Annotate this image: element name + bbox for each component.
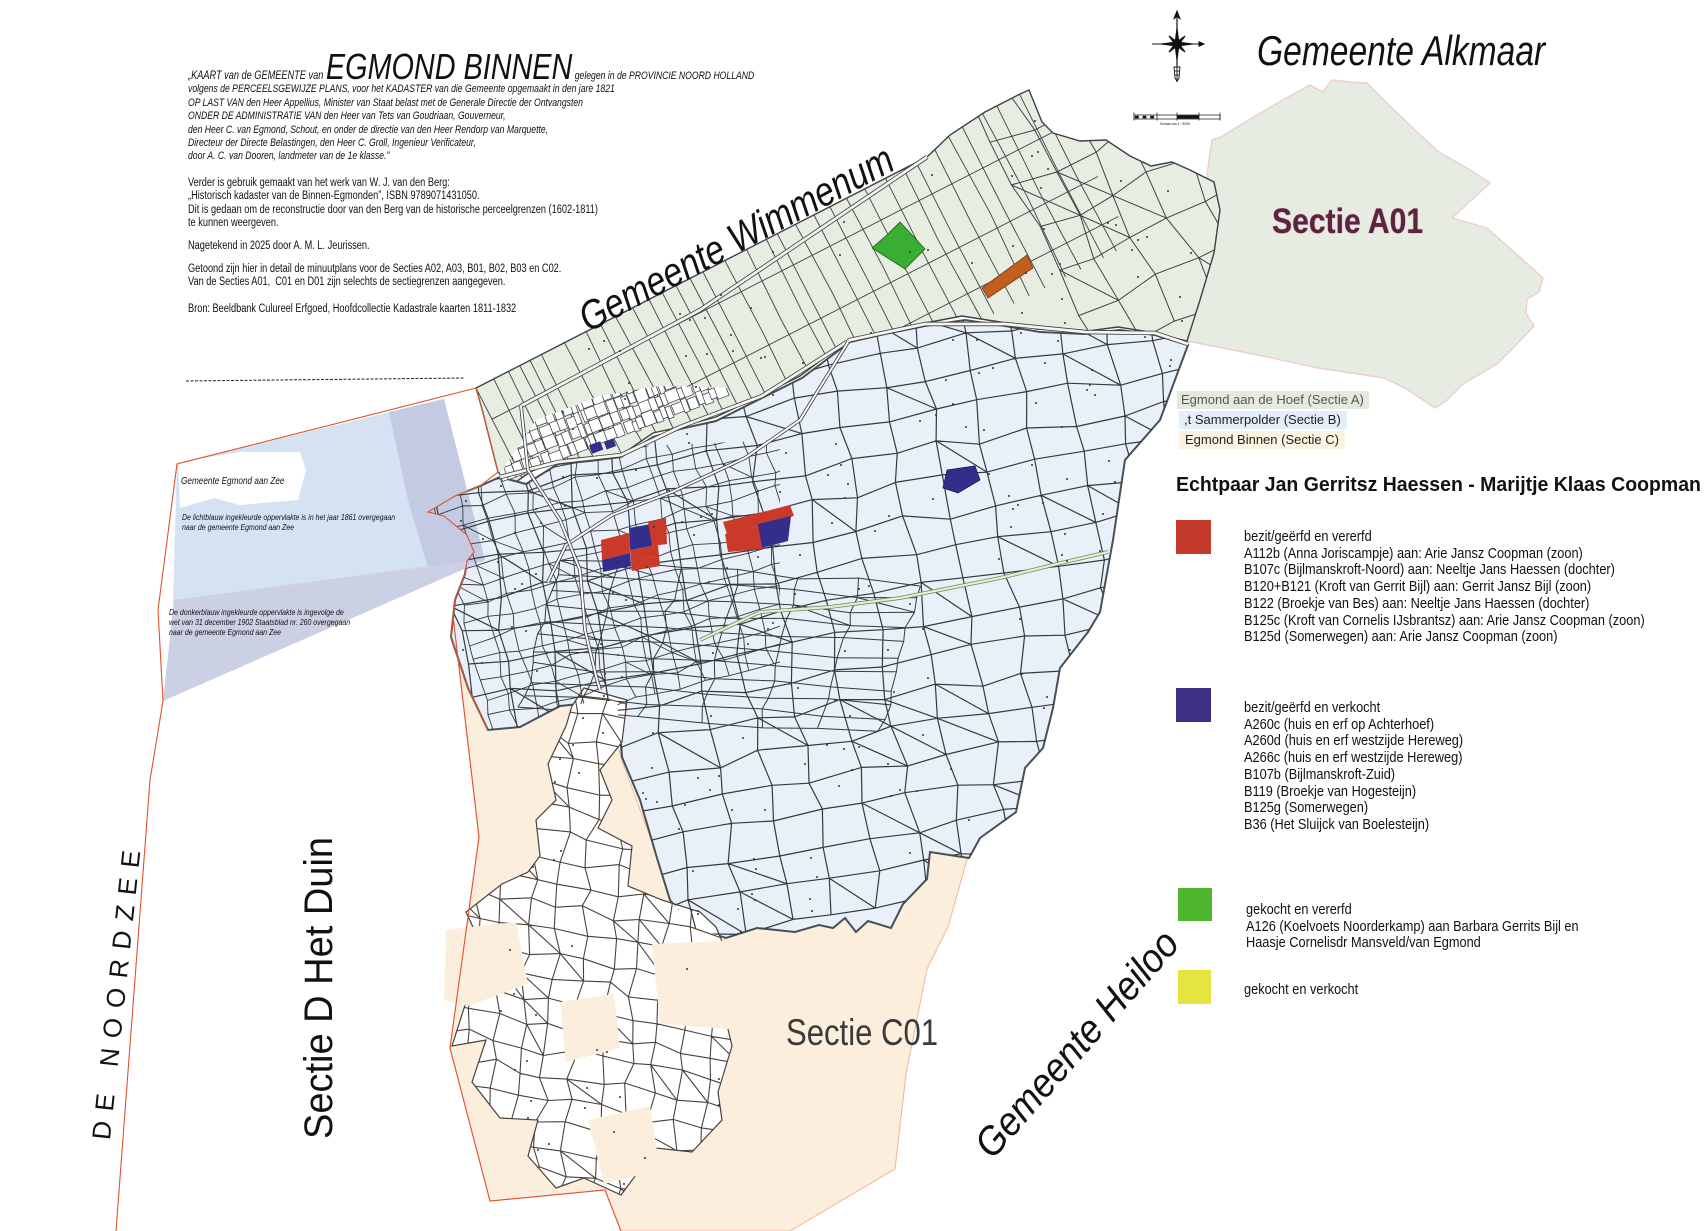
svg-text:Schaal van 1 : 5000: Schaal van 1 : 5000: [1160, 122, 1190, 126]
